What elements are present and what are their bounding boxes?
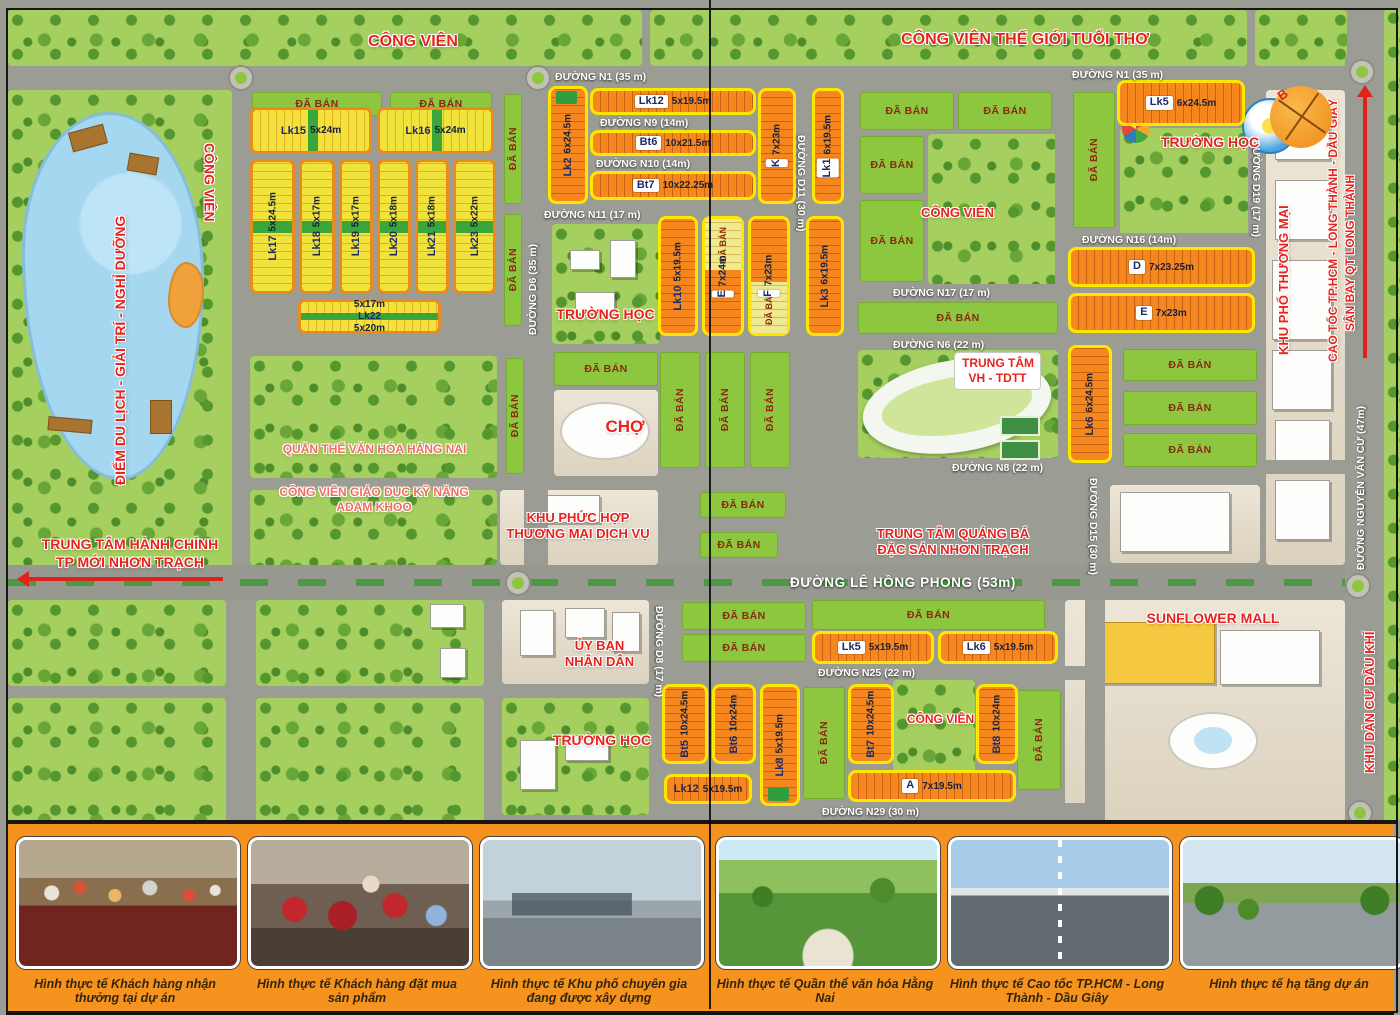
lot-label: Lk235x22m bbox=[469, 196, 481, 256]
lot-name: K bbox=[766, 160, 788, 168]
lot-lk20: Lk205x18m bbox=[377, 159, 411, 294]
label-line: TRUNG TÂM QUẢNG BÁ bbox=[848, 526, 1058, 542]
lot-dim: 10x24.5m bbox=[866, 691, 877, 736]
fold-line bbox=[709, 0, 711, 1009]
lot-lk10: Lk105x19.5m bbox=[658, 216, 698, 336]
lot-label: Bt810x24m bbox=[991, 695, 1003, 753]
lot-label: Lk125x19.5m bbox=[674, 783, 743, 795]
lot-label: Lk195x17m bbox=[350, 196, 362, 256]
label-diem-du-lich: ĐIỂM DU LỊCH - GIẢI TRÍ - NGHỈ DƯỠNG bbox=[112, 185, 130, 515]
sold-label: ĐÃ BÁN bbox=[1168, 402, 1211, 414]
lot-dim: 5x19.5m bbox=[673, 242, 684, 281]
label-line: KHU PHỨC HỢP bbox=[492, 510, 664, 526]
lot-bt5: Bt510x24.5m bbox=[662, 684, 708, 764]
sold-label: ĐÃ BÁN bbox=[674, 388, 686, 431]
sold-label: ĐÃ BÁN bbox=[1168, 359, 1211, 371]
sold-block: ĐÃ BÁN bbox=[660, 352, 700, 468]
lot-label: Lk26x24.5m bbox=[562, 114, 574, 176]
lot-label: Lk55x19.5m bbox=[838, 641, 908, 655]
lot-label: Lk16x19.5m bbox=[817, 115, 839, 177]
sold-block: ĐÃ BÁN bbox=[682, 602, 806, 630]
roundabout bbox=[1347, 575, 1369, 597]
lot-dim: 7x24m bbox=[718, 255, 729, 286]
lot-label: Lk175x24.5m bbox=[267, 192, 279, 261]
lot-name: Bt5 bbox=[679, 740, 691, 758]
road-label-n9: ĐƯỜNG N9 (14m) bbox=[600, 117, 688, 129]
lot-dim: 5x22m bbox=[469, 196, 480, 227]
lot-label: Lk215x18m bbox=[426, 196, 438, 256]
label-truong-hoc-right: TRƯỜNG HỌC bbox=[1155, 134, 1265, 152]
label-truong-hoc-mid: TRƯỜNG HỌC bbox=[548, 306, 663, 324]
highway-direction-arrow-icon bbox=[1363, 96, 1367, 358]
roundabout bbox=[527, 67, 549, 89]
lot-dim: 6x24.5m bbox=[563, 114, 574, 153]
label-quan-the-van-hoa: QUẦN THỂ VĂN HÓA HẰNG NAI bbox=[252, 442, 497, 457]
road-label-n17: ĐƯỜNG N17 (17 m) bbox=[893, 287, 990, 299]
lot-name: Lk10 bbox=[672, 285, 684, 310]
sold-label: ĐÃ BÁN bbox=[722, 610, 765, 622]
road-label-nguyen-van-cu: ĐƯỜNG NGUYỄN VĂN CỪ (47m) bbox=[1355, 360, 1367, 570]
lot-dim2: 5x20m bbox=[354, 323, 385, 334]
lot-f: ĐÃ BÁNF7x23m bbox=[748, 216, 790, 336]
label-cho: CHỢ bbox=[585, 416, 665, 437]
tennis-court bbox=[1000, 416, 1040, 436]
lot-label: Lk66x24.5m bbox=[1084, 373, 1096, 435]
lot-dim: 5x19.5m bbox=[672, 96, 711, 107]
lot-dim: 5x24m bbox=[434, 125, 465, 136]
label-khu-dan-cu-dau-khi: KHU DÂN CƯ DẦU KHÍ bbox=[1362, 610, 1378, 795]
lot-dim: 6x19.5m bbox=[820, 245, 831, 284]
sold-block: ĐÃ BÁN bbox=[1017, 690, 1061, 790]
lot-name: Bt7 bbox=[633, 179, 659, 193]
photo-caption: Hình thực tế Khách hàng nhận thưởng tại … bbox=[16, 977, 234, 1005]
lot-dim: 5x19.5m bbox=[775, 714, 786, 753]
lot-label: Lk65x19.5m bbox=[963, 641, 1033, 655]
lot-name: Lk15 bbox=[281, 125, 306, 137]
sold-block: ĐÃ BÁN bbox=[506, 358, 524, 474]
label-trung-tam-quang-ba: TRUNG TÂM QUẢNG BÁĐẶC SẢN NHƠN TRẠCH bbox=[848, 526, 1058, 559]
lot-label: 5x17mLk225x20m bbox=[354, 299, 385, 334]
lot-dim: 10x24m bbox=[992, 695, 1003, 732]
lot-k: K7x23m bbox=[758, 88, 796, 204]
lot-name: Bt7 bbox=[865, 740, 877, 758]
road-label-d15: ĐƯỜNG D15 (30 m) bbox=[1087, 478, 1099, 590]
sold-block: ĐÃ BÁN bbox=[803, 687, 845, 799]
sold-label: ĐÃ BÁN bbox=[1168, 444, 1211, 456]
lot-name: Lk6 bbox=[1084, 416, 1096, 435]
lot-name: Lk6 bbox=[963, 641, 990, 655]
sold-label: ĐÃ BÁN bbox=[983, 105, 1026, 117]
lot-name: Lk18 bbox=[311, 232, 323, 257]
label-truong-hoc-bottom: TRƯỜNG HỌC bbox=[542, 732, 662, 750]
road-label-d11-top: ĐƯỜNG D11 (30 m) bbox=[795, 135, 807, 250]
project-photo bbox=[248, 837, 472, 969]
lot-dim: 7x19.5m bbox=[922, 781, 961, 792]
lot-lk5: Lk56x24.5m bbox=[1117, 80, 1245, 126]
label-line: VH - TDTT bbox=[962, 371, 1033, 386]
lot-name: D bbox=[1129, 260, 1145, 274]
sold-block: ĐÃ BÁN bbox=[858, 302, 1058, 334]
label-khu-pho-thuong-mai: KHU PHỐ THƯƠNG MẠI bbox=[1276, 210, 1292, 355]
label-sunflower-mall: SUNFLOWER MALL bbox=[1128, 610, 1298, 628]
lot-name: E bbox=[1136, 306, 1151, 320]
lot-label: D7x23.25m bbox=[1129, 260, 1194, 274]
sold-block: ĐÃ BÁN bbox=[1073, 92, 1115, 228]
compass-icon: B bbox=[1270, 86, 1332, 148]
lot-dim: 10x22.25m bbox=[663, 180, 714, 191]
sold-label: ĐÃ BÁN bbox=[584, 363, 627, 375]
road-label-d6: ĐƯỜNG D6 (35 m) bbox=[527, 215, 539, 335]
photo-list: Hình thực tế Khách hàng nhận thưởng tại … bbox=[6, 823, 1394, 1012]
photo-card: Hình thực tế Quần thể văn hóa Hằng Nai bbox=[716, 837, 934, 1005]
road-label-n10: ĐƯỜNG N10 (14m) bbox=[596, 158, 690, 170]
sold-label: ĐÃ BÁN bbox=[885, 105, 928, 117]
lot-label: Lk36x19.5m bbox=[819, 245, 831, 307]
sold-block: ĐÃ BÁN bbox=[682, 634, 806, 662]
lot-dim: 5x18m bbox=[427, 196, 438, 227]
lot-label: Bt610x24m bbox=[728, 695, 740, 753]
tennis-court bbox=[1000, 440, 1040, 460]
sold-block: ĐÃ BÁN bbox=[750, 352, 790, 468]
sold-block: ĐÃ BÁN bbox=[554, 352, 658, 386]
photo-caption: Hình thực tế Cao tốc TP.HCM - Long Thành… bbox=[948, 977, 1166, 1005]
lot-name: Lk12 bbox=[635, 95, 668, 109]
lot-name: Lk5 bbox=[838, 641, 865, 655]
sold-label: ĐÃ BÁN bbox=[818, 721, 830, 764]
label-line: ỦY BAN bbox=[542, 638, 657, 654]
lot-dim: 5x17m bbox=[312, 196, 323, 227]
road-label-n16: ĐƯỜNG N16 (14m) bbox=[1082, 234, 1176, 246]
lot-name: Lk12 bbox=[674, 783, 699, 795]
lot-lk21: Lk215x18m bbox=[415, 159, 449, 294]
lot-dim: 7x23m bbox=[764, 255, 775, 286]
lot-name: Bt8 bbox=[991, 735, 1003, 753]
road-label-n1: ĐƯỜNG N1 (35 m) bbox=[555, 71, 646, 83]
lot-name: Bt6 bbox=[636, 136, 662, 150]
lot-label: E7x24m bbox=[712, 255, 734, 297]
label-cong-vien-the-gioi-tuoi-tho: CÔNG VIÊN THẾ GIỚI TUỔI THƠ bbox=[880, 30, 1170, 50]
sold-label: ĐÃ BÁN bbox=[1088, 138, 1100, 181]
lot-e: E7x23m bbox=[1068, 293, 1255, 333]
lot-dim: 10x24m bbox=[729, 695, 740, 732]
lot-dim: 10x24.5m bbox=[680, 691, 691, 736]
sold-block: ĐÃ BÁN bbox=[504, 94, 522, 204]
lot-lk12: Lk125x19.5m bbox=[664, 774, 752, 804]
sold-block: ĐÃ BÁN bbox=[958, 92, 1052, 130]
lot-name: Lk2 bbox=[562, 157, 574, 176]
road-label-n8: ĐƯỜNG N8 (22 m) bbox=[952, 462, 1043, 474]
lot-lk22: 5x17mLk225x20m bbox=[298, 299, 441, 334]
lot-name: Lk3 bbox=[819, 288, 831, 307]
fountain-plaza bbox=[1168, 712, 1258, 770]
sold-block: ĐÃ BÁN bbox=[860, 92, 954, 130]
sold-label: ĐÃ BÁN bbox=[1033, 718, 1045, 761]
lot-name: Lk16 bbox=[405, 125, 430, 137]
lot-lk3: Lk36x19.5m bbox=[806, 216, 844, 336]
lot-name: Lk19 bbox=[350, 232, 362, 257]
label-cong-vien-top-left: CÔNG VIÊN bbox=[348, 32, 478, 52]
photo-caption: Hình thực tế hạ tầng dự án bbox=[1180, 977, 1398, 991]
lot-dim: 6x19.5m bbox=[823, 115, 834, 154]
lot-bt6: Bt610x24m bbox=[712, 684, 756, 764]
lot-lk12: Lk125x19.5m bbox=[590, 88, 756, 115]
road-label-n1-2: ĐƯỜNG N1 (35 m) bbox=[1072, 69, 1163, 81]
label-line: ADAM KHOO bbox=[248, 500, 500, 515]
lot-dim: 5x24m bbox=[310, 125, 341, 136]
photo-card: Hình thực tế Khách hàng nhận thưởng tại … bbox=[16, 837, 234, 1005]
photo-caption: Hình thực tế Khu phố chuyên gia đang đượ… bbox=[480, 977, 698, 1005]
lot-name: Bt6 bbox=[728, 735, 740, 753]
project-photo bbox=[1180, 837, 1400, 969]
lot-dim: 5x19.5m bbox=[994, 642, 1033, 653]
lot-lk17: Lk175x24.5m bbox=[250, 159, 295, 294]
lot-label: K7x23m bbox=[766, 124, 788, 167]
photo-card: Hình thực tế hạ tầng dự án bbox=[1180, 837, 1398, 991]
label-trung-tam-vh-tdtt: TRUNG TÂMVH - TDTT bbox=[955, 353, 1040, 389]
sold-label: ĐÃ BÁN bbox=[907, 609, 950, 621]
sold-block: ĐÃ BÁN bbox=[860, 136, 924, 194]
roundabout bbox=[507, 572, 529, 594]
photo-caption: Hình thực tế Quần thể văn hóa Hằng Nai bbox=[716, 977, 934, 1005]
label-cong-vien-bottom: CÔNG VIÊN bbox=[893, 712, 988, 727]
label-line: THƯƠNG MẠI DỊCH VỤ bbox=[492, 526, 664, 542]
label-line: TRUNG TÂM bbox=[962, 356, 1033, 371]
lot-lk1: Lk16x19.5m bbox=[812, 88, 844, 204]
lot-green-cap bbox=[556, 91, 577, 104]
road-label-n25: ĐƯỜNG N25 (22 m) bbox=[818, 667, 915, 679]
lot-bt6: Bt610x21.5m bbox=[590, 130, 756, 156]
photo-strip: Hình thực tế Khách hàng nhận thưởng tại … bbox=[6, 820, 1394, 1015]
lot-label: A7x19.5m bbox=[902, 779, 961, 793]
lot-lk5: Lk55x19.5m bbox=[812, 631, 934, 664]
label-adam-khoo: CÔNG VIÊN GIÁO DỤC KỸ NĂNGADAM KHOO bbox=[248, 485, 500, 515]
lot-dim: 6x24.5m bbox=[1085, 373, 1096, 412]
sold-label: ĐÃ BÁN bbox=[507, 127, 519, 170]
pier-icon bbox=[150, 400, 172, 434]
lot-name: Lk5 bbox=[1146, 96, 1173, 110]
label-line: TP MỚI NHƠN TRẠCH bbox=[25, 554, 235, 572]
lot-label: Bt610x21.5m bbox=[636, 136, 711, 150]
road-label-d19: ĐƯỜNG D19 (17 m) bbox=[1250, 140, 1262, 235]
label-line: TRUNG TÂM HÀNH CHÍNH bbox=[25, 536, 235, 554]
project-photo bbox=[480, 837, 704, 969]
sold-label: ĐÃ BÁN bbox=[870, 235, 913, 247]
lot-name: A bbox=[902, 779, 918, 793]
lot-label: Bt510x24.5m bbox=[679, 691, 691, 758]
lot-dim: 7x23m bbox=[772, 124, 783, 155]
lot-lk2: Lk26x24.5m bbox=[548, 86, 588, 204]
lot-lk6: Lk66x24.5m bbox=[1068, 345, 1112, 463]
road-label-n6: ĐƯỜNG N6 (22 m) bbox=[893, 339, 984, 351]
sold-block: ĐÃ BÁN bbox=[504, 214, 522, 326]
lot-bt7: Bt710x22.25m bbox=[590, 171, 756, 200]
sold-label: ĐÃ BÁN bbox=[717, 539, 760, 551]
roundabout bbox=[230, 67, 252, 89]
lot-a: A7x19.5m bbox=[848, 770, 1016, 802]
lot-dim: 7x23.25m bbox=[1149, 262, 1194, 273]
label-uy-ban-nhan-dan: ỦY BANNHÂN DÂN bbox=[542, 638, 657, 671]
label-cong-vien-center: CÔNG VIÊN bbox=[905, 205, 1010, 221]
lot-lk23: Lk235x22m bbox=[453, 159, 496, 294]
sold-block: ĐÃ BÁN bbox=[700, 492, 786, 518]
lot-label: Lk155x24m bbox=[281, 125, 341, 137]
lot-lk8: Lk85x19.5m bbox=[760, 684, 800, 806]
lot-label: Lk125x19.5m bbox=[635, 95, 712, 109]
compass-north-label: B bbox=[1275, 86, 1291, 104]
lot-label: Lk85x19.5m bbox=[774, 714, 786, 776]
lot-dim: 7x23m bbox=[1156, 308, 1187, 319]
label-line: CÔNG VIÊN GIÁO DỤC KỸ NĂNG bbox=[248, 485, 500, 500]
sold-label: ĐÃ BÁN bbox=[719, 388, 731, 431]
lot-dim: 5x24.5m bbox=[267, 192, 278, 231]
photo-card: Hình thực tế Cao tốc TP.HCM - Long Thành… bbox=[948, 837, 1166, 1005]
project-photo bbox=[16, 837, 240, 969]
admin-center-arrow-icon bbox=[28, 577, 223, 581]
lot-lk6: Lk65x19.5m bbox=[938, 631, 1058, 664]
label-trung-tam-hanh-chinh: TRUNG TÂM HÀNH CHÍNHTP MỚI NHƠN TRẠCH bbox=[25, 536, 235, 571]
lot-label: Lk56x24.5m bbox=[1146, 96, 1216, 110]
lot-lk18: Lk185x17m bbox=[299, 159, 335, 294]
sold-label: ĐÃ BÁN bbox=[764, 388, 776, 431]
lot-dim: 6x24.5m bbox=[1177, 98, 1216, 109]
lot-label: Bt710x22.25m bbox=[633, 179, 713, 193]
lot-label: Lk185x17m bbox=[311, 196, 323, 256]
sold-label: ĐÃ BÁN bbox=[870, 159, 913, 171]
lot-label: Lk205x18m bbox=[388, 196, 400, 256]
photo-card: Hình thực tế Khách hàng đặt mua sản phẩm bbox=[248, 837, 466, 1005]
project-photo bbox=[716, 837, 940, 969]
lot-label: Lk105x19.5m bbox=[672, 242, 684, 311]
lot-bt7: Bt710x24.5m bbox=[848, 684, 894, 764]
lot-name: Lk21 bbox=[426, 232, 438, 257]
lot-green-cap bbox=[768, 788, 789, 801]
photo-card: Hình thực tế Khu phố chuyên gia đang đượ… bbox=[480, 837, 698, 1005]
lot-label: Lk165x24m bbox=[405, 125, 465, 137]
lot-label: F7x23m bbox=[758, 255, 780, 297]
lot-name: Lk20 bbox=[388, 232, 400, 257]
lot-lk16: Lk165x24m bbox=[377, 107, 494, 154]
lot-name: Lk23 bbox=[469, 232, 481, 257]
sold-block: ĐÃ BÁN bbox=[1123, 433, 1257, 467]
label-khu-phuc-hop: KHU PHỨC HỢPTHƯƠNG MẠI DỊCH VỤ bbox=[492, 510, 664, 543]
label-line: ĐẶC SẢN NHƠN TRẠCH bbox=[848, 542, 1058, 558]
sold-label: ĐÃ BÁN bbox=[721, 499, 764, 511]
sold-block: ĐÃ BÁN bbox=[1123, 349, 1257, 381]
project-photo bbox=[948, 837, 1172, 969]
sold-block: ĐÃ BÁN bbox=[812, 600, 1045, 630]
sold-block: ĐÃ BÁN bbox=[700, 532, 778, 558]
lot-name: E bbox=[712, 290, 734, 297]
lot-dim: 5x19.5m bbox=[869, 642, 908, 653]
sold-label: ĐÃ BÁN bbox=[509, 394, 521, 437]
label-line: NHÂN DÂN bbox=[542, 654, 657, 670]
sold-label: ĐÃ BÁN bbox=[722, 642, 765, 654]
road-label-n29: ĐƯỜNG N29 (30 m) bbox=[822, 806, 919, 818]
lot-name: Lk8 bbox=[774, 757, 786, 776]
lot-lk15: Lk155x24m bbox=[250, 107, 372, 154]
photo-caption: Hình thực tế Khách hàng đặt mua sản phẩm bbox=[248, 977, 466, 1005]
lot-d: D7x23.25m bbox=[1068, 247, 1255, 287]
roundabout bbox=[1351, 61, 1373, 83]
road-label-le-hong-phong: ĐƯỜNG LÊ HỒNG PHONG (53m) bbox=[790, 575, 1016, 590]
lot-label: Bt710x24.5m bbox=[865, 691, 877, 758]
lot-name: F bbox=[758, 290, 780, 297]
masterplan-poster: B ĐÃ BÁNĐÃ BÁNĐÃ BÁNĐÃ BÁNĐÃ BÁNĐÃ BÁNĐÃ… bbox=[0, 0, 1400, 1015]
lot-label: E7x23m bbox=[1136, 306, 1186, 320]
lot-dim: 5x17m bbox=[351, 196, 362, 227]
lot-dim: 5x18m bbox=[389, 196, 400, 227]
lot-name: Lk17 bbox=[267, 236, 279, 261]
lot-dim: 5x17m bbox=[354, 299, 385, 310]
lot-dim: 10x21.5m bbox=[665, 138, 710, 149]
road-label-n11: ĐƯỜNG N11 (17 m) bbox=[544, 209, 640, 221]
label-san-bay: SÂN BAY QT LONG THÀNH bbox=[1343, 130, 1358, 375]
sold-block: ĐÃ BÁN bbox=[705, 352, 745, 468]
lot-lk19: Lk195x17m bbox=[339, 159, 373, 294]
label-cong-vien-left: CÔNG VIÊN bbox=[200, 95, 218, 270]
lot-name: Lk1 bbox=[817, 158, 839, 177]
sold-label: ĐÃ BÁN bbox=[507, 248, 519, 291]
sold-block: ĐÃ BÁN bbox=[1123, 391, 1257, 425]
sold-label: ĐÃ BÁN bbox=[936, 312, 979, 324]
lot-name: Lk22 bbox=[358, 311, 381, 322]
